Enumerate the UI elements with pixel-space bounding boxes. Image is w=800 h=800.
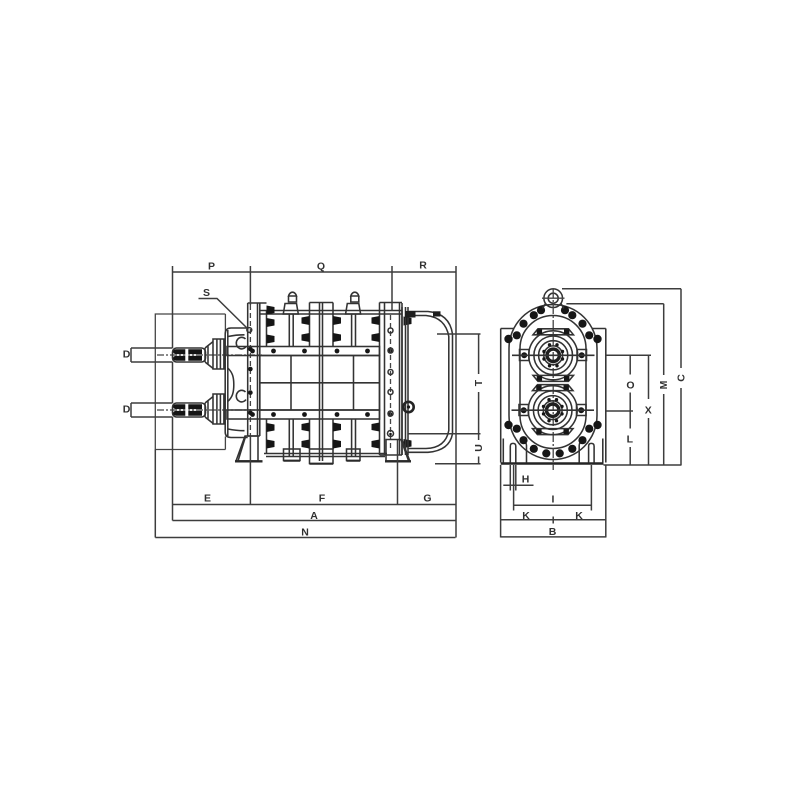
svg-text:I: I [552, 494, 555, 506]
svg-text:E: E [204, 493, 211, 505]
svg-text:O: O [626, 380, 634, 392]
svg-text:C: C [676, 374, 688, 382]
svg-text:L: L [627, 434, 634, 446]
svg-text:H: H [522, 474, 530, 486]
svg-text:D: D [123, 403, 131, 415]
svg-text:T: T [473, 379, 485, 386]
svg-text:X: X [645, 405, 652, 417]
svg-text:U: U [473, 444, 485, 452]
svg-text:K: K [575, 510, 583, 522]
svg-text:Q: Q [317, 261, 325, 273]
svg-text:F: F [319, 493, 326, 505]
svg-text:N: N [301, 527, 309, 539]
svg-text:A: A [310, 510, 318, 522]
svg-text:G: G [423, 493, 431, 505]
svg-text:S: S [203, 287, 210, 299]
svg-text:R: R [419, 260, 427, 272]
svg-text:K: K [522, 510, 530, 522]
svg-text:B: B [549, 526, 557, 538]
svg-text:D: D [123, 348, 131, 360]
svg-text:P: P [208, 261, 215, 273]
svg-text:M: M [658, 380, 670, 389]
